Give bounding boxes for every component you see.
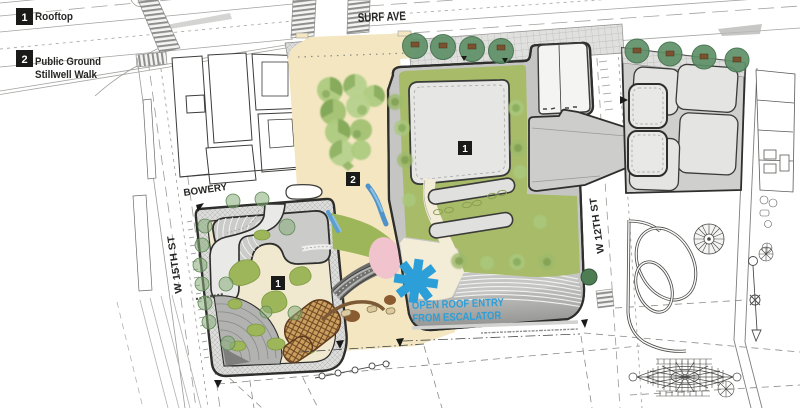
- svg-text:1: 1: [21, 12, 27, 24]
- svg-text:2: 2: [350, 175, 356, 186]
- svg-text:Stillwell Walk: Stillwell Walk: [35, 69, 98, 81]
- svg-text:1: 1: [275, 279, 281, 290]
- svg-text:Public Ground: Public Ground: [35, 56, 101, 68]
- svg-text:2: 2: [21, 54, 27, 66]
- svg-text:SURF AVE: SURF AVE: [358, 9, 407, 25]
- svg-text:1: 1: [462, 144, 468, 155]
- svg-text:Rooftop: Rooftop: [35, 11, 73, 23]
